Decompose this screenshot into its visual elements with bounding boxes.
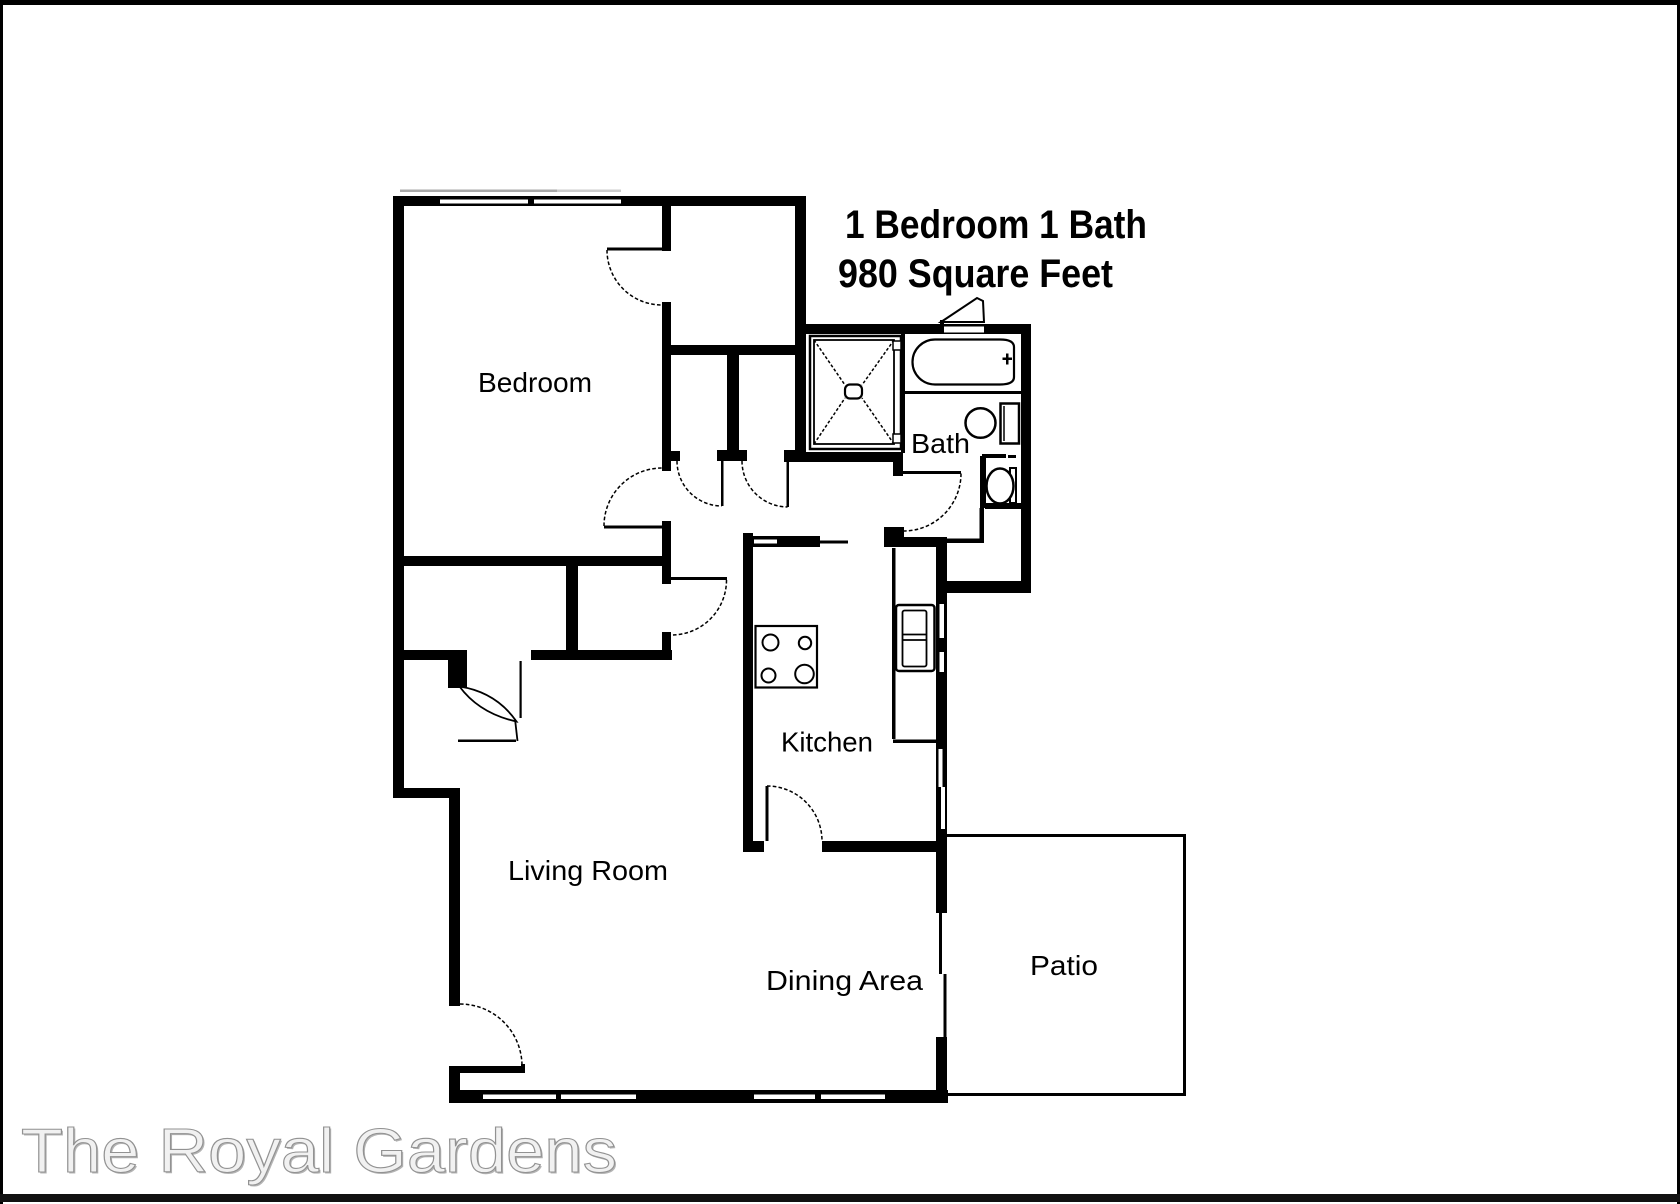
svg-text:Kitchen: Kitchen <box>781 727 873 758</box>
svg-text:980 Square Feet: 980 Square Feet <box>838 252 1113 296</box>
svg-text:Living Room: Living Room <box>508 855 668 886</box>
svg-text:Dining Area: Dining Area <box>766 965 923 996</box>
svg-text:The Royal Gardens: The Royal Gardens <box>21 1117 617 1186</box>
svg-text:Bath: Bath <box>911 428 970 459</box>
svg-text:1 Bedroom 1 Bath: 1 Bedroom 1 Bath <box>845 203 1147 247</box>
svg-text:Bedroom: Bedroom <box>478 367 592 398</box>
svg-text:Patio: Patio <box>1030 950 1098 981</box>
